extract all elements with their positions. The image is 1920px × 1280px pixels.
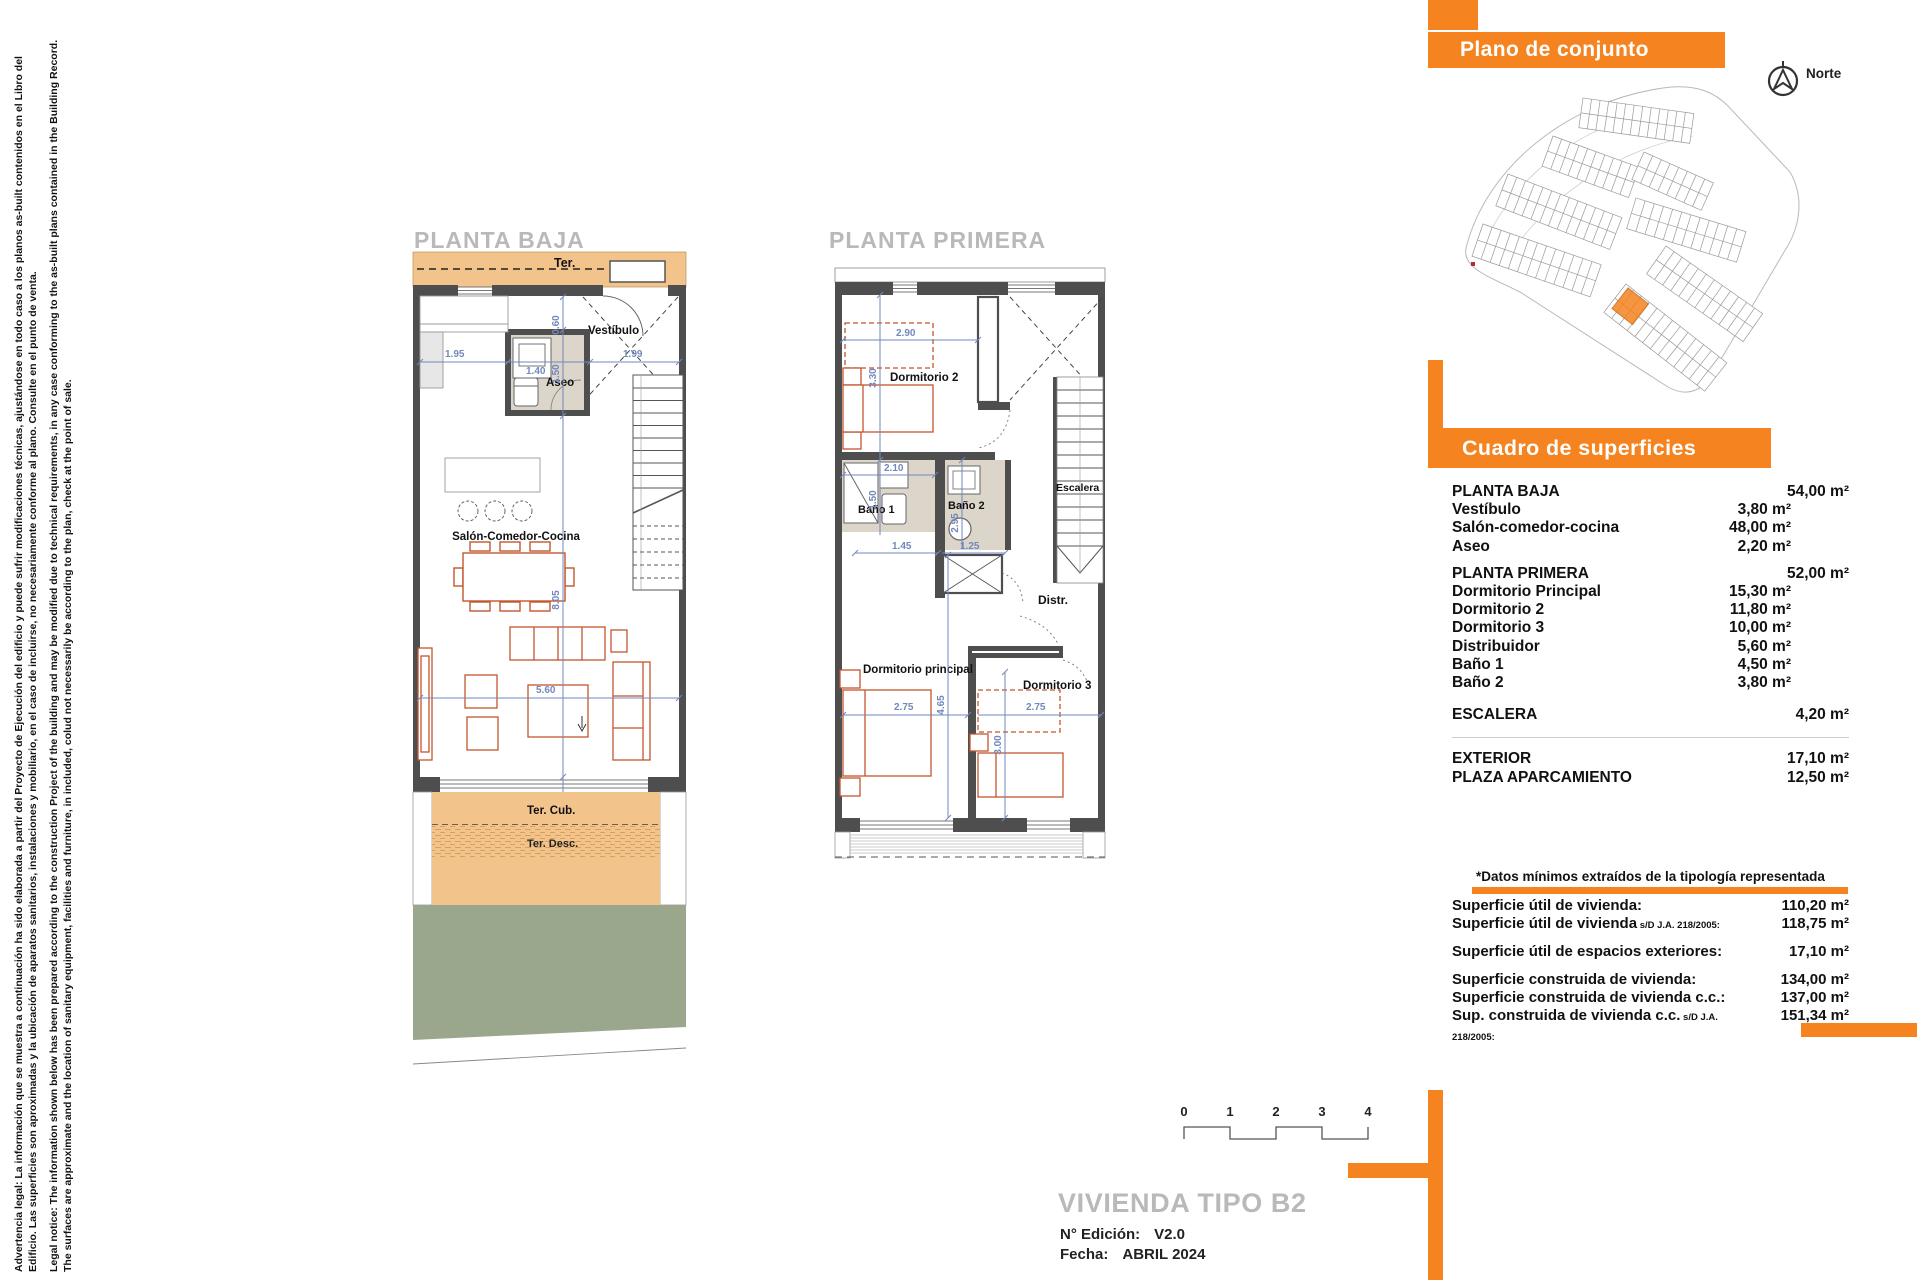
svg-text:1.95: 1.95	[445, 349, 465, 360]
surfaces-header: Cuadro de superficies	[1428, 428, 1771, 468]
parapet	[835, 268, 1105, 282]
room-label-dormitorio-principal: Dormitorio principal	[863, 664, 973, 676]
datos-row: Superficie útil de espacios exteriores:1…	[1452, 943, 1849, 961]
svg-text:2.75: 2.75	[1026, 702, 1046, 713]
aseo-room: Aseo	[505, 329, 590, 416]
datos-note: *Datos mínimos extraídos de la tipología…	[1476, 869, 1825, 884]
svg-text:3.30: 3.30	[868, 368, 879, 388]
orange-corner-stub-top	[1428, 0, 1478, 30]
dormitorio2-furniture	[843, 323, 933, 449]
datos-row: Superficie construida de vivienda c.c.:1…	[1452, 989, 1849, 1007]
surfaces-section-row: PLANTA BAJA54,00 m²	[1452, 483, 1849, 501]
datos-table: Superficie útil de vivienda:110,20 m²Sup…	[1452, 897, 1849, 1047]
surfaces-room-row: Baño 14,50 m²	[1452, 656, 1849, 674]
svg-text:1.99: 1.99	[623, 349, 643, 360]
scale-tick-2: 2	[1272, 1104, 1279, 1119]
surfaces-section-row: EXTERIOR17,10 m²	[1452, 750, 1849, 768]
site-housing-strip	[1542, 136, 1639, 198]
surfaces-section-row: ESCALERA4,20 m²	[1452, 706, 1849, 724]
datos-row: Superficie construida de vivienda:134,00…	[1452, 971, 1849, 989]
bathroom2: Baño 2	[945, 460, 1005, 550]
site-housing-strip	[1627, 198, 1746, 262]
legal-notice-es: Advertencia legal: La información que se…	[13, 30, 41, 1272]
date-row: Fecha:ABRIL 2024	[1060, 1246, 1219, 1263]
dormitorio-principal-furniture	[840, 670, 931, 796]
scale-tick-0: 0	[1180, 1104, 1187, 1119]
scale-bar: 0 1 2 3 4	[1172, 1098, 1382, 1148]
edition-value: V2.0	[1154, 1226, 1185, 1243]
surfaces-room-row: Dormitorio 310,00 m²	[1452, 619, 1849, 637]
datos-row: Superficie útil de vivienda s/D J.A. 218…	[1452, 915, 1849, 935]
room-label-vestibulo: Vestíbulo	[588, 325, 639, 337]
garden-area	[413, 905, 686, 1040]
datos-row: Sup. construida de vivienda c.c. s/D J.A…	[1452, 1007, 1849, 1047]
site-plan-drawing	[1458, 76, 1908, 416]
svg-text:0.60: 0.60	[551, 315, 562, 335]
plan-title-planta-primera: PLANTA PRIMERA	[829, 228, 1046, 253]
surfaces-room-row: Salón-comedor-cocina48,00 m²	[1452, 519, 1849, 537]
svg-text:1.45: 1.45	[892, 541, 912, 552]
orange-bar-vertical-bottom	[1428, 1090, 1443, 1280]
surfaces-section-row: PLANTA PRIMERA52,00 m²	[1452, 565, 1849, 583]
legal-notice: Advertencia legal: La información que se…	[13, 30, 82, 1272]
svg-text:2.90: 2.90	[896, 328, 916, 339]
surfaces-room-row: Baño 23,80 m²	[1452, 674, 1849, 692]
room-label-distribuidor: Distr.	[1038, 593, 1068, 607]
svg-text:5.60: 5.60	[536, 685, 556, 696]
plan-title-planta-baja: PLANTA BAJA	[414, 228, 585, 253]
surfaces-room-row: Vestíbulo3,80 m²	[1452, 501, 1849, 519]
plan-sheet: Advertencia legal: La información que se…	[0, 0, 1920, 1280]
dwelling-type-title: VIVIENDA TIPO B2	[1058, 1188, 1307, 1219]
svg-text:1.50: 1.50	[551, 364, 562, 384]
terrace-bottom: Ter. Cub. Ter. Desc.	[413, 792, 686, 1064]
surfaces-divider	[1452, 737, 1849, 738]
svg-text:3.00: 3.00	[993, 735, 1004, 755]
room-label-dormitorio3: Dormitorio 3	[1023, 680, 1091, 692]
surfaces-room-row: Distribuidor5,60 m²	[1452, 638, 1849, 656]
floor-plan-planta-primera: PLANTA PRIMERA	[820, 228, 1112, 883]
dormitorio3-furniture	[970, 690, 1063, 797]
shower-box	[943, 555, 1023, 603]
stairs-planta-primera	[1057, 377, 1103, 583]
datos-row: Superficie útil de vivienda:110,20 m²	[1452, 897, 1849, 915]
terrace-louvers	[835, 832, 1105, 858]
room-label-escalera: Escalera	[1056, 482, 1099, 494]
orange-bar-horizontal-bottom	[1348, 1163, 1428, 1178]
surfaces-room-row: Aseo2,20 m²	[1452, 538, 1849, 556]
sofa-set	[418, 627, 650, 760]
svg-text:2.75: 2.75	[894, 702, 914, 713]
terrace-top: Ter.	[413, 252, 686, 287]
room-label-bano2: Baño 2	[948, 500, 985, 512]
date-value: ABRIL 2024	[1122, 1246, 1205, 1263]
room-label-dormitorio2: Dormitorio 2	[890, 372, 958, 384]
svg-text:1.50: 1.50	[868, 490, 879, 510]
svg-text:1.40: 1.40	[526, 366, 546, 377]
label-ter-desc: Ter. Desc.	[527, 838, 578, 850]
orange-bar-bottom-right	[1801, 1023, 1917, 1037]
stairs-planta-baja	[633, 375, 683, 590]
surfaces-table: PLANTA BAJA54,00 m²Vestíbulo3,80 m²Salón…	[1452, 483, 1849, 787]
scale-tick-4: 4	[1364, 1104, 1372, 1119]
scale-tick-1: 1	[1226, 1104, 1233, 1119]
label-ter: Ter.	[554, 256, 575, 270]
svg-text:8.05: 8.05	[551, 590, 562, 610]
datos-underline	[1472, 887, 1848, 894]
room-label-salon: Salón-Comedor-Cocina	[452, 531, 580, 543]
svg-text:4.65: 4.65	[936, 695, 947, 715]
date-label: Fecha:	[1060, 1246, 1108, 1263]
surfaces-section-row: PLAZA APARCAMIENTO12,50 m²	[1452, 769, 1849, 787]
edition-row: N° Edición:V2.0	[1060, 1226, 1199, 1243]
svg-text:1.25: 1.25	[960, 541, 980, 552]
surfaces-room-row: Dormitorio 211,80 m²	[1452, 601, 1849, 619]
orange-stub-cuadro	[1428, 360, 1443, 428]
svg-text:2.10: 2.10	[884, 463, 904, 474]
edition-label: N° Edición:	[1060, 1226, 1140, 1243]
site-housing-strip	[1579, 98, 1694, 143]
label-ter-cub: Ter. Cub.	[527, 805, 575, 817]
surfaces-room-row: Dormitorio Principal15,30 m²	[1452, 583, 1849, 601]
legal-notice-en: Legal notice: The information shown belo…	[48, 30, 76, 1272]
floor-plan-planta-baja: PLANTA BAJA Ter. Vestíbulo	[405, 228, 697, 1078]
scale-tick-3: 3	[1318, 1104, 1325, 1119]
svg-text:2.95: 2.95	[950, 513, 961, 533]
site-plan-header: Plano de conjunto	[1428, 32, 1725, 68]
